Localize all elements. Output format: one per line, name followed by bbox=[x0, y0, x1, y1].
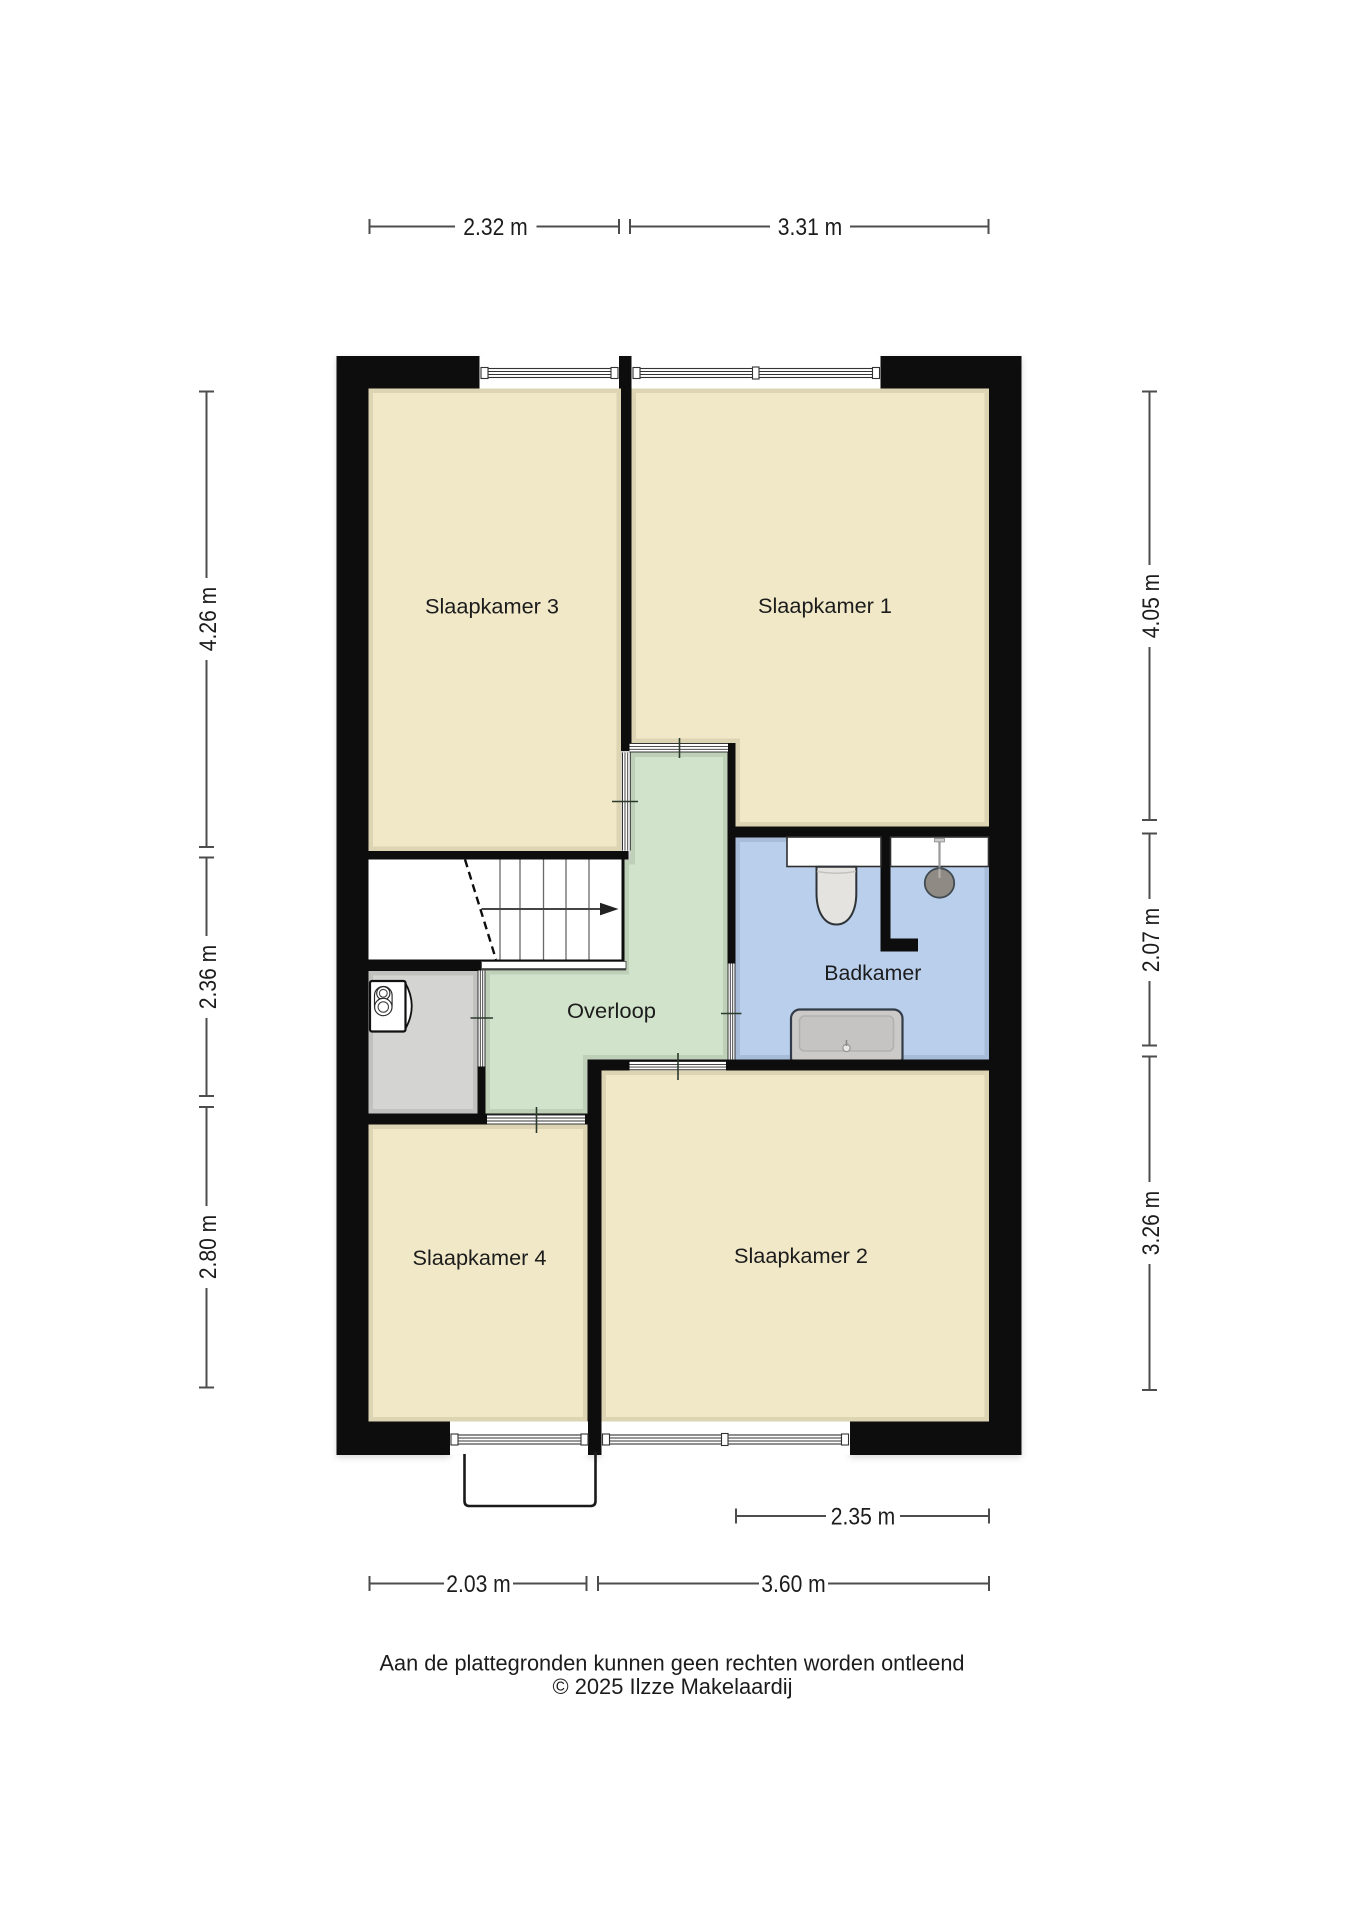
svg-text:2.36 m: 2.36 m bbox=[195, 945, 222, 1010]
svg-text:2.03 m: 2.03 m bbox=[446, 1571, 511, 1598]
svg-text:Slaapkamer 3: Slaapkamer 3 bbox=[425, 594, 559, 618]
svg-text:2.80 m: 2.80 m bbox=[195, 1215, 222, 1280]
svg-text:3.31 m: 3.31 m bbox=[778, 214, 843, 241]
svg-text:Overloop: Overloop bbox=[567, 1000, 656, 1023]
svg-text:2.35 m: 2.35 m bbox=[831, 1504, 896, 1531]
svg-text:2.32 m: 2.32 m bbox=[463, 214, 528, 241]
svg-text:© 2025 Ilzze Makelaardij: © 2025 Ilzze Makelaardij bbox=[553, 1674, 793, 1699]
svg-text:2.07 m: 2.07 m bbox=[1138, 908, 1165, 973]
svg-text:Slaapkamer 4: Slaapkamer 4 bbox=[413, 1246, 547, 1270]
svg-text:Aan de plattegronden kunnen ge: Aan de plattegronden kunnen geen rechten… bbox=[380, 1651, 965, 1676]
svg-text:Slaapkamer 1: Slaapkamer 1 bbox=[758, 594, 892, 618]
svg-text:3.26 m: 3.26 m bbox=[1138, 1191, 1165, 1256]
svg-text:Badkamer: Badkamer bbox=[824, 962, 921, 985]
svg-text:4.05 m: 4.05 m bbox=[1138, 574, 1165, 639]
svg-text:Slaapkamer 2: Slaapkamer 2 bbox=[734, 1244, 868, 1268]
svg-text:4.26 m: 4.26 m bbox=[195, 587, 222, 652]
svg-text:3.60 m: 3.60 m bbox=[761, 1571, 826, 1598]
